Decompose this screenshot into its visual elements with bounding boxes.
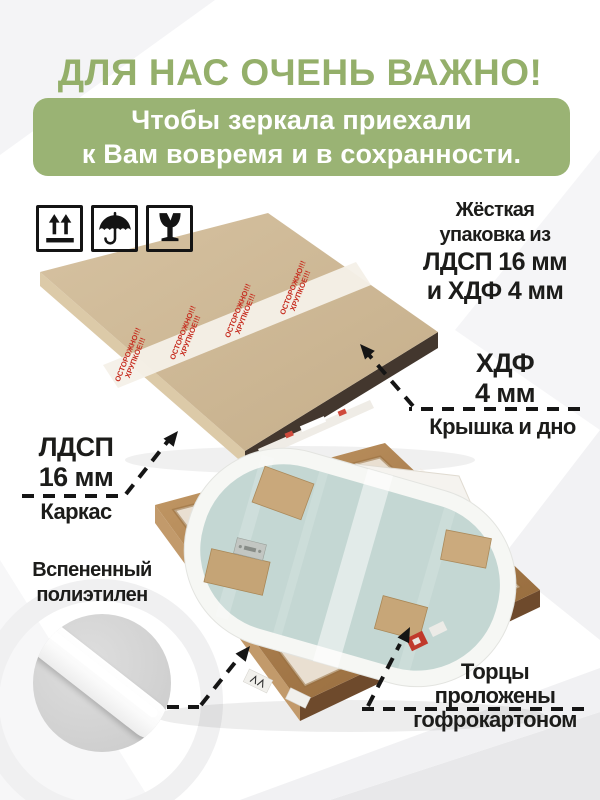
foam-line-2: полиэтилен <box>8 583 176 608</box>
ldsp-title: ЛДСП <box>15 432 137 462</box>
subtitle-banner: Чтобы зеркала приехали к Вам вовремя и в… <box>33 98 570 176</box>
edges-arrow-diag <box>368 644 400 706</box>
callout-rigid-packaging: Жёсткая упаковка из ЛДСП 16 мм и ХДФ 4 м… <box>410 198 580 306</box>
banner-line-1: Чтобы зеркала приехали <box>33 103 570 137</box>
callout-hdf: ХДФ 4 мм <box>425 348 585 408</box>
edges-line-3: гофрокартоном <box>400 708 590 732</box>
this-way-up-icon <box>36 205 83 252</box>
hdf-size: 4 мм <box>425 378 585 408</box>
callout-edges: Торцы проложены гофрокартоном <box>400 660 590 732</box>
callout-ldsp: ЛДСП 16 мм <box>15 432 137 492</box>
edges-arrowhead <box>398 627 411 643</box>
keep-dry-icon <box>91 205 138 252</box>
rigid-line-3: ЛДСП 16 мм <box>410 248 580 277</box>
foam-arrow-diag <box>201 660 237 705</box>
callout-foam: Вспененный полиэтилен <box>8 558 176 608</box>
hdf-caption: Крышка и дно <box>415 415 590 439</box>
foam-line-1: Вспененный <box>8 558 176 583</box>
page-title: ДЛЯ НАС ОЧЕНЬ ВАЖНО! <box>0 52 600 94</box>
foam-arrowhead <box>236 646 251 662</box>
rigid-line-4: и ХДФ 4 мм <box>410 277 580 306</box>
edges-line-2: проложены <box>400 684 590 708</box>
hdf-title: ХДФ <box>425 348 585 378</box>
product-infographic: ОСТОРОЖНО!!! ХРУПКОЕ!!! ОСТОРОЖНО!!! ХРУ… <box>0 0 600 800</box>
rigid-line-2: упаковка из <box>410 223 580 248</box>
fragile-icon <box>146 205 193 252</box>
hdf-arrow-diag <box>369 355 413 406</box>
edges-line-1: Торцы <box>400 660 590 684</box>
ldsp-size: 16 мм <box>15 462 137 492</box>
rigid-line-1: Жёсткая <box>410 198 580 223</box>
banner-line-2: к Вам вовремя и в сохранности. <box>33 137 570 171</box>
ldsp-caption: Каркас <box>15 500 137 524</box>
